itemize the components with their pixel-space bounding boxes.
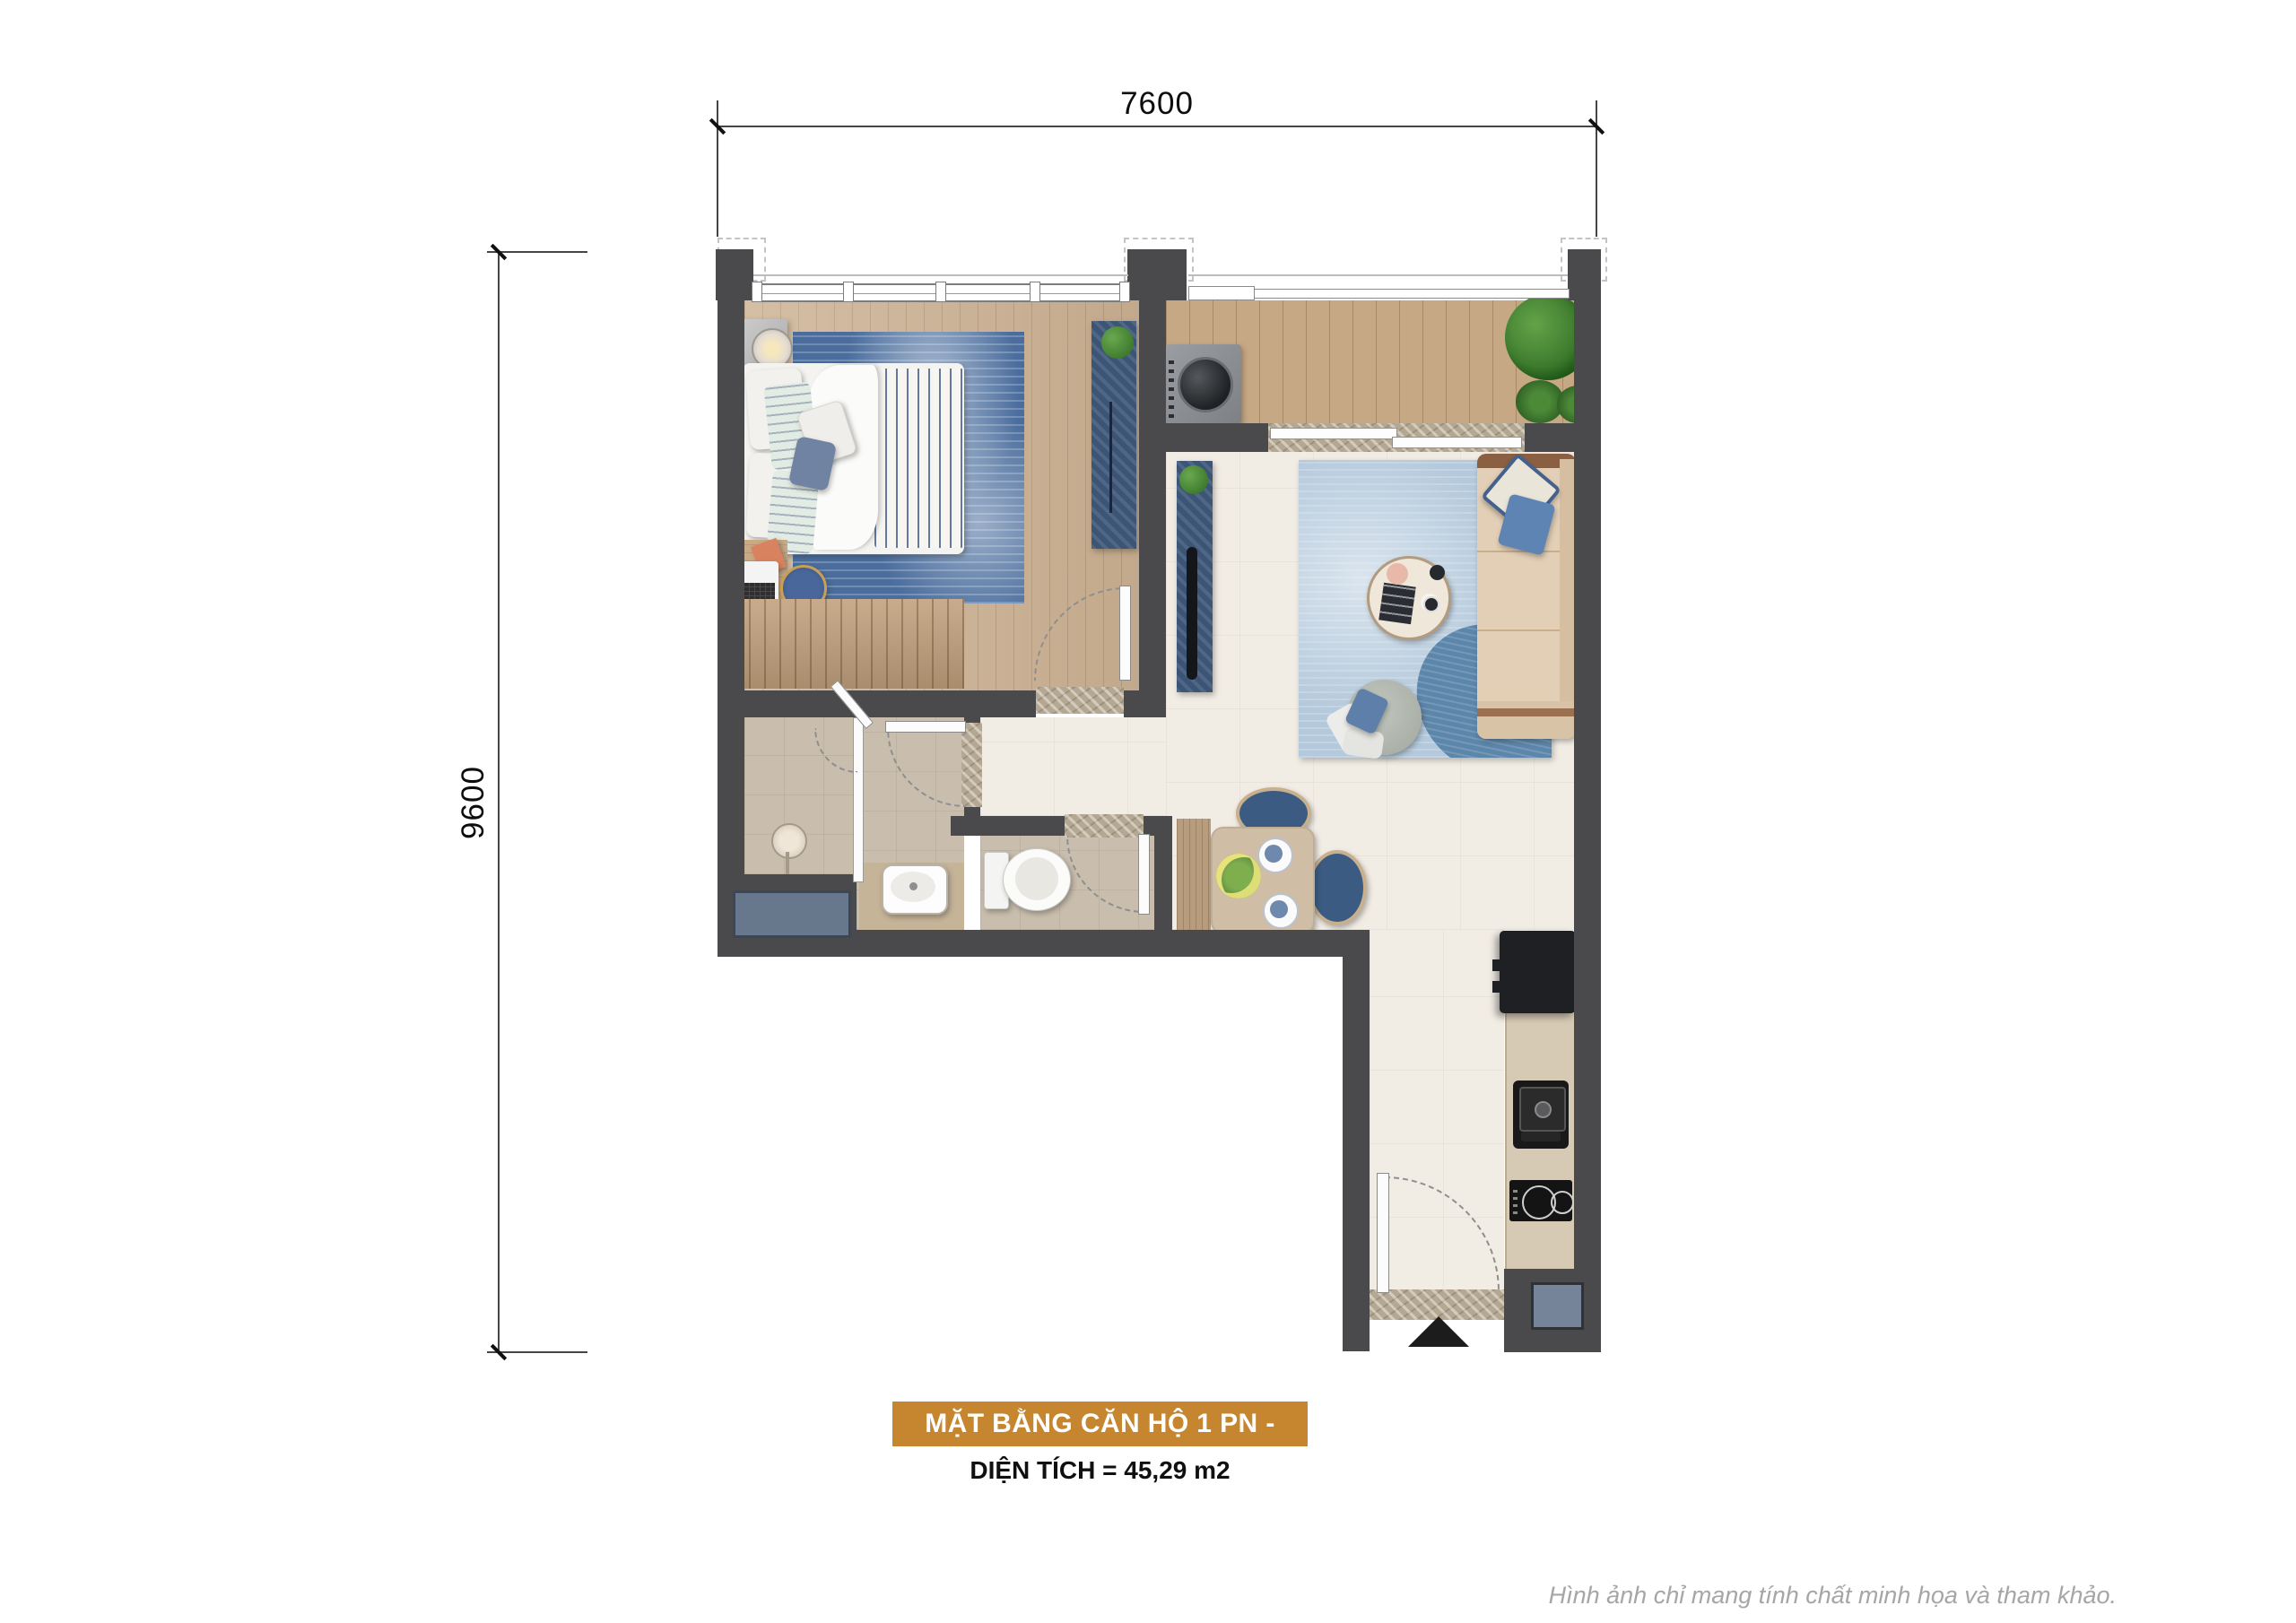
wall xyxy=(717,690,1036,717)
shower-head xyxy=(771,823,807,859)
flower-centerpiece xyxy=(1216,854,1261,898)
lintel-line xyxy=(1188,274,1568,276)
entrance-threshold xyxy=(1370,1289,1504,1320)
basin-faucet xyxy=(909,882,918,890)
dining-console xyxy=(1177,819,1211,933)
bed-quilt xyxy=(874,369,964,548)
sink-drain xyxy=(1535,1101,1552,1118)
wc-door-leaf xyxy=(1138,834,1150,915)
wall xyxy=(1574,249,1601,1269)
pastry-tray xyxy=(1387,563,1408,585)
window-mullion xyxy=(935,282,946,302)
wall xyxy=(951,816,1065,836)
magazine xyxy=(1378,583,1415,625)
sliding-door xyxy=(1392,437,1522,448)
wall xyxy=(1139,300,1166,692)
plate-pattern xyxy=(1270,900,1288,918)
wardrobe-handle xyxy=(1109,402,1112,513)
disclaimer-text: Hình ảnh chỉ mang tính chất minh họa và … xyxy=(1399,1582,2117,1610)
window-mullion xyxy=(843,282,854,302)
lintel-line xyxy=(753,274,1128,276)
cooktop-controls xyxy=(1513,1187,1518,1214)
threshold xyxy=(1036,687,1124,714)
plan-title-banner: MẶT BẰNG CĂN HỘ 1 PN - LOẠI A1 xyxy=(892,1402,1308,1446)
wall xyxy=(717,249,744,957)
window-mullion xyxy=(1119,282,1130,302)
plate-pattern xyxy=(1265,845,1283,863)
plan-area-label: DIỆN TÍCH = 45,29 m2 xyxy=(892,1456,1308,1485)
dimension-label-width: 7600 xyxy=(1076,86,1238,122)
plant-icon xyxy=(1179,465,1208,494)
window-mullion xyxy=(1030,282,1040,302)
dimension-line-top xyxy=(717,126,1596,127)
fridge-handle xyxy=(1492,959,1500,971)
hallway-floor xyxy=(980,717,1166,816)
sofa-seam xyxy=(1477,551,1560,552)
sink-faucet-deck xyxy=(1521,1132,1561,1141)
dimension-extension-top-left xyxy=(717,100,718,237)
dimension-extension-top-right xyxy=(1596,100,1597,237)
soundbar xyxy=(1187,547,1197,680)
sofa-armrest xyxy=(1477,701,1576,739)
railing-bracket xyxy=(1188,286,1255,300)
bench xyxy=(734,599,964,689)
threshold xyxy=(1065,814,1144,838)
burner xyxy=(1551,1191,1574,1214)
dimension-label-height: 9600 xyxy=(456,722,491,883)
washer-controls xyxy=(1169,355,1174,418)
wall xyxy=(1525,423,1574,452)
floor-plan-page: 7600 9600 xyxy=(0,0,2296,1623)
entrance-arrow-icon xyxy=(1408,1316,1469,1347)
window-mullion xyxy=(752,282,762,302)
shower-arm xyxy=(786,852,789,875)
wall xyxy=(1154,816,1172,930)
washer-drum xyxy=(1178,357,1233,412)
bedroom-door-leaf xyxy=(1119,586,1131,681)
ac-ledge xyxy=(733,890,851,938)
bathroom-door-leaf xyxy=(885,721,966,733)
fridge-handle xyxy=(1492,981,1500,993)
sofa-seam xyxy=(1477,629,1560,631)
bowl xyxy=(1430,565,1445,580)
wall xyxy=(1343,930,1370,1351)
entrance-door-leaf xyxy=(1377,1173,1389,1293)
wall xyxy=(1124,690,1166,717)
kitchen-counter xyxy=(1505,1013,1576,1294)
wall xyxy=(1127,249,1187,300)
ac-ledge xyxy=(1531,1282,1584,1330)
throw-blanket xyxy=(1342,727,1385,759)
wall xyxy=(1166,423,1268,452)
refrigerator xyxy=(1500,931,1576,1013)
dimension-line-left xyxy=(498,252,500,1352)
plant-icon xyxy=(1101,326,1134,359)
sliding-door xyxy=(1270,428,1397,439)
sofa-armrest-trim xyxy=(1477,708,1576,716)
toilet-seat xyxy=(1015,857,1058,900)
coffee-cup xyxy=(1423,596,1439,612)
dining-chair xyxy=(1308,850,1367,925)
